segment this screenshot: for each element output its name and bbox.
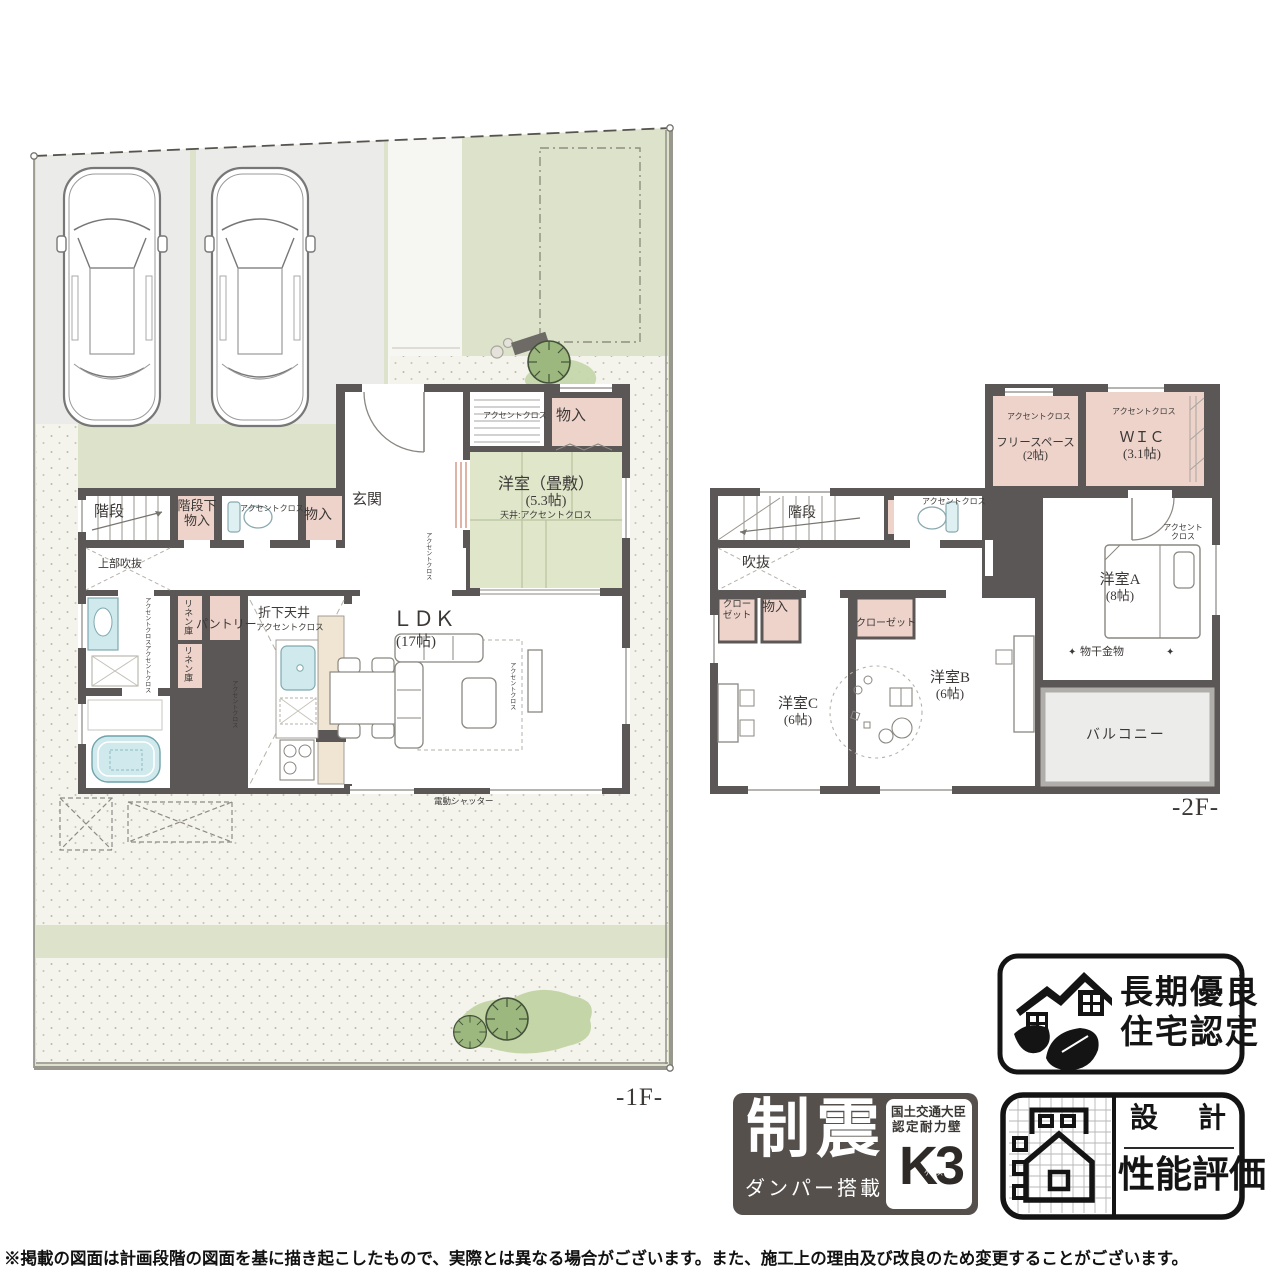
label-accent-freespace: アクセントクロス — [1007, 413, 1071, 422]
tv-board — [528, 650, 542, 712]
disclaimer-text: ※掲載の図面は計画段階の図面を基に描き起こしたもので、実際とは異なる場合がござい… — [4, 1250, 1188, 1268]
toilet-tank-icon — [228, 502, 240, 532]
label-linen-1: リネン庫 — [183, 599, 193, 635]
label-tatami-closet: 物入 — [556, 408, 586, 425]
tree-icon — [454, 1016, 487, 1049]
label-drying-diamond-2: ✦ — [1166, 647, 1174, 658]
floor-label-1f: -1F- — [616, 1084, 663, 1112]
badge-minister-line2: 認定耐力壁 — [892, 1120, 962, 1134]
label-closet-c: クローゼット — [714, 600, 760, 621]
badge-k3-logo: K3 — [899, 1136, 962, 1196]
badge-seismic-sub: ダンパー搭載 — [745, 1178, 883, 1200]
label-accent-wic: アクセントクロス — [1112, 408, 1176, 417]
label-closet-b: クローゼット — [856, 618, 916, 629]
car-icon — [205, 168, 315, 426]
label-accent-wash-1: アクセントクロス — [143, 597, 150, 645]
desk-b — [1014, 636, 1034, 732]
label-wic: ＷＩＣ (3.1帖) — [1086, 430, 1198, 461]
label-understairs-storage: 階段下物入 — [168, 499, 226, 528]
label-accent-porch: アクセントクロス — [424, 532, 431, 580]
toilet-2f-icon — [918, 507, 946, 529]
label-accent-wash-2: アクセントクロス — [143, 645, 150, 693]
label-storage-2f: 物入 — [762, 600, 788, 615]
label-drying-diamond-1: ✦ — [1068, 647, 1076, 658]
label-room-c: 洋室C (6帖) — [760, 696, 836, 727]
room-entrance — [345, 392, 463, 590]
label-room-a: 洋室A (8帖) — [1080, 572, 1160, 603]
badge-seismic-big: 制震 — [746, 1094, 886, 1166]
badge-design-top: 設 計 — [1130, 1102, 1232, 1133]
badge-minister-line1: 国土交通大臣 — [891, 1105, 966, 1119]
label-balcony: バルコニー — [1086, 728, 1166, 744]
label-entrance: 玄関 — [352, 492, 382, 509]
label-free-space: フリースペース (2帖) — [991, 437, 1080, 463]
floorplan-page: 階段 階段下物入 アクセントクロス 物入 玄関 アクセントクロス 物入 洋室（畳… — [0, 0, 1280, 1280]
label-accent-kitchen-v: アクセントクロス — [230, 680, 237, 728]
label-accent-toilet-2f: アクセントクロス — [922, 498, 986, 507]
label-accent-toilet-1f: アクセントクロス — [240, 505, 304, 514]
car-icon — [57, 168, 167, 426]
bathtub-icon — [92, 736, 160, 782]
label-tatami-room: 洋室（畳敷） (5.3帖) 天井:アクセントクロス — [470, 476, 622, 520]
desk-c — [718, 684, 738, 742]
label-ldk-size: (17帖) — [396, 634, 436, 651]
label-accent-shoe: アクセントクロス — [483, 412, 547, 421]
label-room-b: 洋室B (6帖) — [912, 670, 988, 701]
label-hall-storage: 物入 — [304, 508, 332, 524]
label-ldk: ＬＤＫ — [392, 608, 455, 632]
label-stairs-2f: 階段 — [788, 506, 816, 522]
label-upper-void: 上部吹抜 — [98, 558, 142, 570]
badge-longterm-line2: 住宅認定 — [1120, 1014, 1260, 1051]
label-lowered-ceiling: 折下天井 — [258, 606, 310, 621]
label-void: 吹抜 — [742, 556, 770, 572]
label-electric-shutter: 電動シャッター — [434, 797, 494, 807]
label-drying-fixture: 物干金物 — [1080, 646, 1124, 658]
badge-design-bottom: 性能評価 — [1118, 1154, 1266, 1195]
floor-label-2f: -2F- — [1172, 794, 1219, 822]
label-accent-room-a: アクセントクロス — [1158, 524, 1208, 542]
tree-icon — [486, 998, 528, 1040]
badge-k3-sub: ケースリー — [924, 1170, 956, 1177]
label-pantry: パントリー — [196, 618, 257, 631]
label-accent-kitchen: アクセントクロス — [256, 623, 324, 633]
label-linen-2: リネン庫 — [183, 646, 193, 682]
label-accent-ldk: アクセントクロス — [508, 662, 515, 710]
label-stairs-1f: 階段 — [94, 504, 124, 521]
badge-longterm-line1: 長期優良 — [1120, 974, 1260, 1011]
tree-icon — [528, 341, 570, 383]
